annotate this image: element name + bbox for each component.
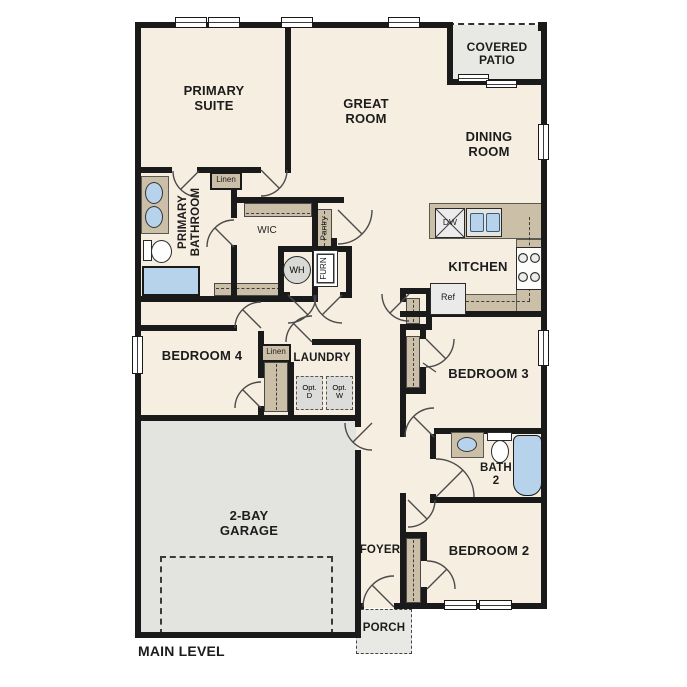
wall-bath-bottom <box>135 296 318 302</box>
window-bedroom2 <box>479 600 512 610</box>
primary-vanity-sink <box>145 206 163 228</box>
kitchen-sink-basin <box>470 213 484 232</box>
room-label-primary-bathroom: PRIMARY BATHROOM <box>177 152 207 292</box>
optional-dryer: Opt. D <box>296 376 323 410</box>
closet-label-pantry: Pantry <box>320 209 331 249</box>
bath2-toilet-bowl <box>491 440 509 463</box>
patio-slider-door <box>458 74 489 82</box>
wic-shelf-top <box>244 203 312 217</box>
wic-shelf-bottom <box>214 283 282 296</box>
room-label-bedroom4: BEDROOM 4 <box>142 349 262 364</box>
wall-patio-corner <box>538 22 547 31</box>
bedroom2-closet-rod <box>413 540 414 601</box>
window-bedroom3 <box>538 330 549 366</box>
window-primary-suite <box>208 17 240 28</box>
wall-front <box>355 603 364 609</box>
wall-suite-bottom <box>135 167 172 173</box>
patio-slider-door <box>486 80 517 88</box>
window-great-room <box>388 17 420 28</box>
optional-washer: Opt. W <box>326 376 353 410</box>
window-bedroom2 <box>444 600 477 610</box>
wall-hall <box>400 330 406 394</box>
wall-bedroom3-closet <box>420 330 426 339</box>
floor-plan-canvas: WH Opt. D Opt. W <box>0 0 687 687</box>
wall-bath-wic <box>231 245 237 302</box>
wall-bath2-left <box>430 434 436 459</box>
garage-door-dashed-outline <box>160 556 333 635</box>
bedroom3-closet-rod <box>413 338 414 386</box>
wall-hall <box>400 292 406 302</box>
wall-kitchen-bedroom3 <box>400 311 547 317</box>
room-label-great-room: GREAT ROOM <box>306 97 426 126</box>
water-heater: WH <box>283 256 311 284</box>
wall-utility-bottom <box>278 292 290 298</box>
wall-utility-bottom <box>340 292 352 298</box>
wall-laundry-top <box>312 339 358 345</box>
wall-bedroom2-closet-right <box>421 587 427 605</box>
wall-laundry-left <box>288 362 294 417</box>
kitchen-cabinet-dashed-line <box>466 301 530 302</box>
room-label-bedroom2: BEDROOM 2 <box>429 544 549 559</box>
bedroom4-closet-rod <box>276 364 277 410</box>
patio-dashed-top-edge <box>448 23 545 25</box>
room-label-bedroom3: BEDROOM 3 <box>432 367 545 382</box>
wall-bath2-bottom <box>434 497 547 503</box>
wall-bedroom4-right <box>258 406 264 417</box>
wall-bedroom2-closet-right <box>421 532 427 561</box>
room-label-covered-patio: COVERED PATIO <box>447 41 547 68</box>
wic-rod <box>246 213 310 214</box>
appliance-label-refrigerator: Ref <box>430 293 466 302</box>
kitchen-sink-basin <box>486 213 500 232</box>
room-label-laundry: LAUNDRY <box>288 352 356 365</box>
wall-laundry-right <box>355 339 361 417</box>
wall-garage-top <box>141 415 361 421</box>
wall-wic-top <box>237 197 344 203</box>
wall-hall <box>400 394 406 437</box>
appliance-label-furnace: FURN <box>320 253 331 284</box>
closet-label-linen-upper: Linen <box>210 176 242 184</box>
primary-toilet-bowl <box>151 240 172 263</box>
room-label-porch: PORCH <box>354 622 414 635</box>
window-great-room <box>281 17 313 28</box>
room-label-kitchen: KITCHEN <box>418 260 538 275</box>
room-label-wic: WIC <box>239 226 295 237</box>
bath2-sink <box>457 437 477 452</box>
wall-garage-bottom <box>135 632 361 638</box>
closet-label-linen-hall: Linen <box>261 348 291 356</box>
room-label-bath2: BATH 2 <box>467 462 525 488</box>
wall-bedroom4-top <box>135 325 237 331</box>
room-label-garage: 2-BAY GARAGE <box>189 509 309 538</box>
primary-vanity-sink <box>145 182 163 204</box>
wic-rod <box>216 288 280 289</box>
window-primary-suite <box>175 17 207 28</box>
room-label-foyer: FOYER <box>349 544 411 557</box>
room-label-primary-suite: PRIMARY SUITE <box>154 84 274 113</box>
plan-level-title: MAIN LEVEL <box>138 644 308 660</box>
wall-suite-greatroom <box>285 22 291 173</box>
appliance-label-dishwasher: DW <box>437 218 463 227</box>
room-label-dining-room: DINING ROOM <box>429 130 549 159</box>
